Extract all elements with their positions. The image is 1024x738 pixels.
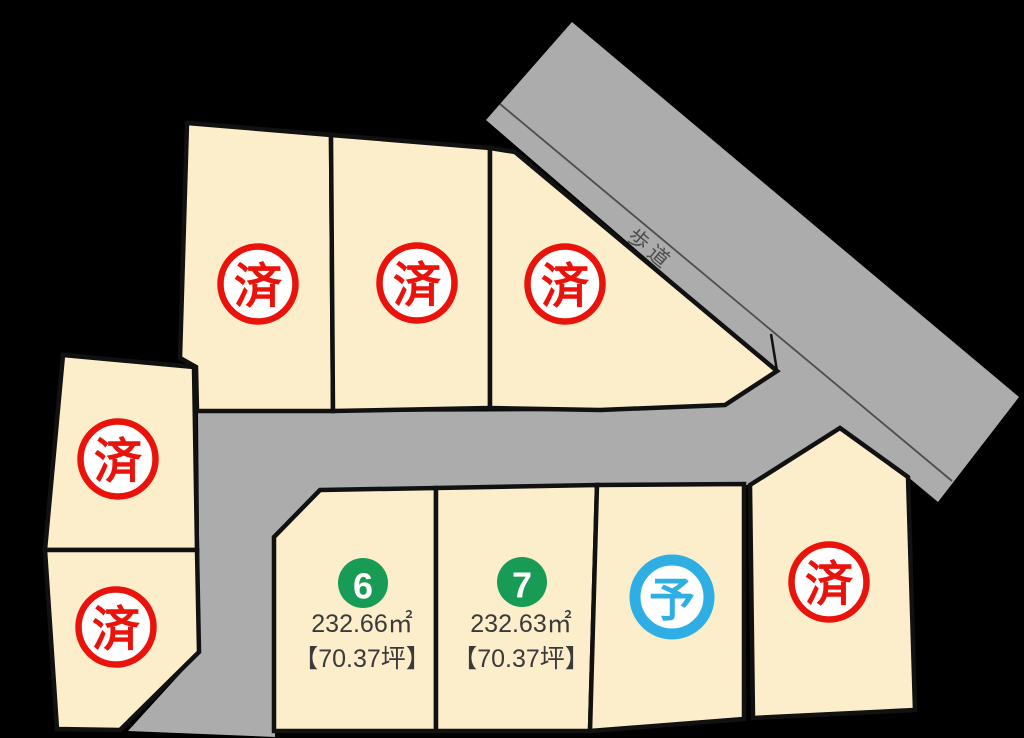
lot-7-badge: 7 xyxy=(497,557,547,607)
lot-7-area-sqm: 232.63㎡ xyxy=(470,610,571,638)
sold-stamp-left-1: 済 xyxy=(81,422,156,497)
sold-stamp-top-3: 済 xyxy=(528,247,603,322)
lot-polygon-7[interactable] xyxy=(436,485,597,731)
sold-stamp-glyph: 済 xyxy=(94,436,143,489)
sold-stamp-glyph: 済 xyxy=(393,260,442,313)
sold-stamp-glyph: 済 xyxy=(541,261,590,314)
land-plot-map: 歩道 済 済 済 済 済 済 予 6 232.6 xyxy=(0,0,1024,738)
sold-stamp-glyph: 済 xyxy=(805,559,854,612)
lot-number: 6 xyxy=(353,566,373,607)
lot-7-area-tsubo: 【70.37坪】 xyxy=(452,645,590,673)
lot-6-area-tsubo: 【70.37坪】 xyxy=(293,645,431,673)
sold-stamp-glyph: 済 xyxy=(92,604,141,657)
sold-stamp-top-2: 済 xyxy=(380,246,455,321)
sold-stamp-bottom-right: 済 xyxy=(792,545,867,620)
sold-stamp-left-2: 済 xyxy=(79,590,154,665)
lot-6-badge: 6 xyxy=(338,558,388,608)
reserved-stamp: 予 xyxy=(635,560,709,634)
sold-stamp-glyph: 済 xyxy=(234,261,283,314)
sold-stamp-top-1: 済 xyxy=(221,247,296,322)
reserved-stamp-glyph: 予 xyxy=(649,574,695,626)
lot-number: 7 xyxy=(512,565,532,606)
lot-6-area-sqm: 232.66㎡ xyxy=(311,610,412,638)
